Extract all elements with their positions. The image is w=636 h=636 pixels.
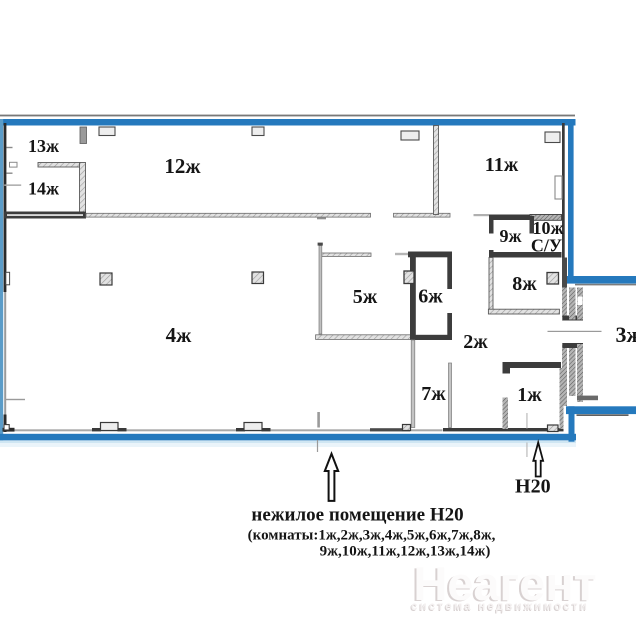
svg-text:нежилое помещение Н20: нежилое помещение Н20 <box>251 505 463 526</box>
svg-text:система недвижимости: система недвижимости <box>411 601 589 613</box>
svg-text:1ж: 1ж <box>517 384 542 406</box>
svg-text:5ж: 5ж <box>353 286 378 308</box>
svg-text:3ж: 3ж <box>616 322 636 347</box>
svg-text:2ж: 2ж <box>463 331 488 353</box>
svg-text:(комнаты:1ж,2ж,3ж,4ж,5ж,6ж,7ж,: (комнаты:1ж,2ж,3ж,4ж,5ж,6ж,7ж,8ж, <box>248 528 496 544</box>
svg-text:6ж: 6ж <box>418 286 443 308</box>
svg-text:С/У: С/У <box>531 236 562 256</box>
svg-text:14ж: 14ж <box>28 179 60 199</box>
svg-text:12ж: 12ж <box>164 154 201 178</box>
svg-text:Н20: Н20 <box>515 476 551 498</box>
svg-text:11ж: 11ж <box>485 154 519 176</box>
svg-text:8ж: 8ж <box>512 273 537 295</box>
svg-text:4ж: 4ж <box>166 323 193 347</box>
svg-text:7ж: 7ж <box>421 383 446 405</box>
svg-text:9ж: 9ж <box>499 226 522 246</box>
svg-text:13ж: 13ж <box>28 136 60 156</box>
